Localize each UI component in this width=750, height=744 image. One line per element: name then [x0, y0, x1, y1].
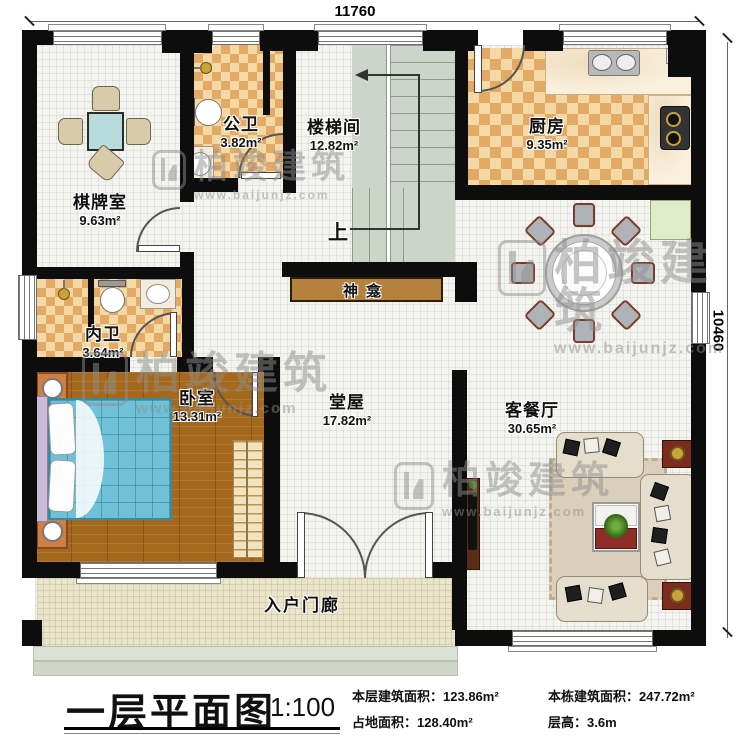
stair-direction-line — [368, 74, 420, 76]
wall-segment — [691, 344, 706, 646]
stairs-up-label: 上 — [328, 216, 348, 245]
plant-icon — [469, 481, 477, 489]
plan-stats: 本层建筑面积：123.86m² 本栋建筑面积：247.72m² 占地面积：128… — [352, 686, 748, 731]
cushion — [563, 439, 581, 457]
cushion — [587, 587, 604, 604]
stat-floor-height: 层高：3.6m — [548, 712, 748, 731]
bed-headboard — [36, 396, 48, 522]
room-name: 内卫 — [82, 320, 123, 345]
room-label-kitchen: 厨房 9.35m² — [526, 112, 567, 152]
wall-segment — [22, 340, 37, 578]
room-name: 棋牌室 — [73, 188, 127, 213]
stat-value: 123.86m² — [443, 689, 499, 704]
dimension-right: 10460 — [710, 301, 727, 361]
room-name: 厨房 — [526, 112, 567, 137]
chair — [573, 203, 595, 227]
door-leaf — [241, 172, 281, 179]
pillow — [48, 402, 77, 455]
cushion — [583, 437, 599, 453]
wall-segment — [22, 30, 37, 277]
window-sill — [76, 578, 221, 584]
wall-segment — [455, 630, 512, 646]
room-label-bedroom: 卧室 13.31m² — [173, 384, 221, 424]
wardrobe-rail — [246, 440, 248, 558]
wall-segment — [177, 357, 213, 372]
stat-value: 247.72m² — [639, 689, 695, 704]
window — [691, 292, 710, 344]
chair — [92, 86, 120, 111]
stat-label: 本栋建筑面积： — [548, 689, 639, 704]
door-leaf — [474, 45, 482, 93]
chair — [631, 262, 655, 284]
wall-segment — [282, 262, 455, 277]
room-area: 30.65m² — [505, 421, 559, 436]
pillow — [48, 459, 77, 512]
room-label-stairwell: 楼梯间 12.82m² — [307, 113, 361, 153]
wall-segment — [455, 45, 468, 185]
chair — [511, 262, 535, 284]
stat-label: 本层建筑面积： — [352, 689, 443, 704]
porch-step — [33, 661, 458, 676]
room-name: 楼梯间 — [307, 113, 361, 138]
wall-segment — [180, 178, 238, 192]
stat-label: 占地面积： — [352, 715, 417, 730]
wall-segment — [264, 357, 280, 578]
cushion — [654, 505, 671, 522]
door-leaf — [297, 512, 305, 578]
porch-floor — [37, 578, 458, 646]
window — [563, 30, 667, 45]
wall-segment — [523, 30, 563, 51]
room-name: 卧室 — [173, 384, 221, 409]
chair — [126, 118, 151, 145]
wall-segment — [22, 562, 80, 578]
room-area: 9.35m² — [526, 137, 567, 152]
stat-floor-area: 本层建筑面积：123.86m² — [352, 686, 548, 705]
dimension-top: 11760 — [325, 3, 385, 20]
stat-value: 128.40m² — [417, 715, 473, 730]
window — [80, 562, 217, 578]
wardrobe — [233, 440, 263, 558]
room-area: 17.82m² — [323, 413, 371, 428]
shower-arm — [63, 280, 65, 289]
wall-segment — [423, 30, 478, 51]
sink-bowl — [616, 54, 636, 71]
wall-segment — [283, 45, 296, 193]
wall-segment — [452, 370, 467, 630]
porch-step — [33, 646, 458, 661]
shower-icon — [58, 288, 70, 300]
toilet — [100, 287, 125, 313]
wall-segment — [182, 279, 194, 357]
dining-table-inner — [561, 250, 607, 296]
room-label-hall: 堂屋 17.82m² — [323, 388, 371, 428]
ornament-icon — [670, 446, 685, 461]
cabinet — [650, 200, 691, 240]
dimension-line — [30, 21, 700, 22]
stove-burner — [666, 131, 681, 146]
window-sill — [48, 24, 166, 31]
stair-treads — [390, 45, 455, 190]
door-leaf — [252, 372, 258, 417]
wall-partition — [263, 45, 270, 115]
title-underline — [64, 727, 340, 734]
window-sill — [314, 24, 427, 31]
stair-arrow-icon — [355, 69, 368, 81]
stove-burner — [666, 112, 681, 127]
wall-segment — [217, 562, 297, 578]
stair-direction-line — [350, 228, 420, 230]
toilet-tank — [98, 280, 126, 287]
tv — [468, 492, 477, 550]
window — [18, 275, 37, 340]
stat-label: 层高： — [548, 715, 587, 730]
window-sill — [508, 646, 657, 652]
stair-direction-line — [418, 74, 420, 230]
chair — [58, 118, 83, 145]
cushion — [565, 585, 582, 602]
door-leaf — [425, 512, 433, 578]
room-area: 3.82m² — [220, 135, 261, 150]
room-area: 12.82m² — [307, 138, 361, 153]
room-label-living-dining: 客餐厅 30.65m² — [505, 396, 559, 436]
room-label-public-bath: 公卫 3.82m² — [220, 110, 261, 150]
room-area: 9.63m² — [73, 213, 127, 228]
stat-value: 3.6m — [587, 715, 617, 730]
wall-segment — [691, 30, 706, 292]
ornament-icon — [670, 588, 685, 603]
window — [318, 30, 423, 45]
stat-footprint-area: 占地面积：128.40m² — [352, 712, 548, 731]
plant-icon — [604, 514, 628, 538]
chair — [573, 319, 595, 343]
window — [53, 30, 162, 45]
wall-segment — [22, 267, 194, 279]
sink-bowl — [592, 54, 612, 71]
wall-segment — [653, 630, 706, 646]
room-name: 堂屋 — [323, 388, 371, 413]
window-sill — [559, 24, 671, 31]
window — [512, 630, 653, 646]
wall-pier — [22, 620, 42, 646]
stat-building-area: 本栋建筑面积：247.72m² — [548, 686, 748, 705]
plan-scale: 1:100 — [270, 692, 335, 723]
toilet — [195, 99, 222, 126]
porch-label: 入户门廊 — [264, 591, 340, 616]
window — [212, 30, 260, 45]
dimension-line — [727, 42, 728, 638]
wall-segment — [455, 262, 477, 302]
room-label-inner-bath: 内卫 3.64m² — [82, 320, 123, 360]
room-area: 3.64m² — [82, 345, 123, 360]
wall-segment — [455, 185, 693, 200]
room-label-game: 棋牌室 9.63m² — [73, 188, 127, 228]
door-leaf — [138, 245, 180, 252]
door-leaf — [170, 312, 177, 357]
cushion — [651, 527, 668, 544]
window-sill — [208, 24, 264, 31]
shrine-label: 神龛 — [343, 280, 389, 301]
lamp-icon — [42, 521, 63, 542]
floor-plan-page: 棋牌室 9.63m² 公卫 3.82m² 楼梯间 12.82m² 厨房 9.35… — [0, 0, 750, 744]
sink — [146, 284, 170, 304]
room-name: 客餐厅 — [505, 396, 559, 421]
room-area: 13.31m² — [173, 409, 221, 424]
room-name: 公卫 — [220, 110, 261, 135]
